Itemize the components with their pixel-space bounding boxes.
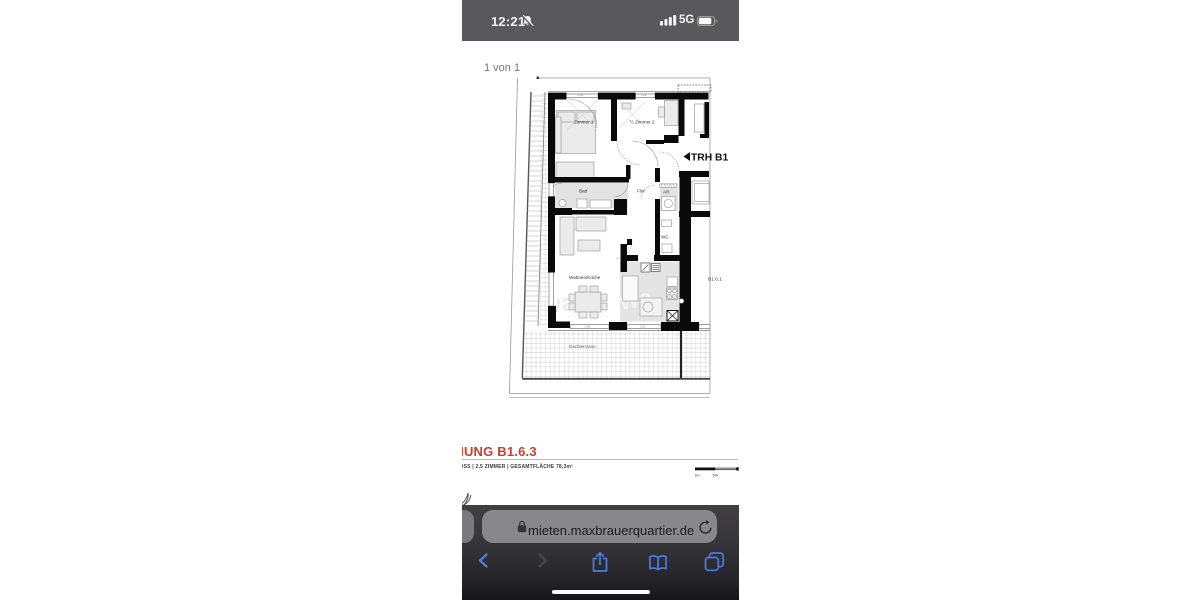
svg-text:2,01: 2,01: [641, 93, 647, 97]
svg-text:WC: WC: [661, 235, 669, 240]
svg-text:2,51: 2,51: [640, 325, 646, 329]
svg-text:Zimmer 1: Zimmer 1: [574, 120, 594, 125]
svg-text:2,96: 2,96: [585, 325, 591, 329]
svg-text:B1.6.1: B1.6.1: [708, 277, 722, 283]
svg-text:Wohnen/Küche: Wohnen/Küche: [569, 275, 601, 280]
svg-text:5m: 5m: [713, 473, 719, 478]
svg-text:AR: AR: [663, 190, 670, 195]
svg-text:½ Zimmer 2: ½ Zimmer 2: [630, 119, 655, 125]
svg-text:Dachterrasse: Dachterrasse: [569, 344, 596, 349]
svg-text:Bad: Bad: [579, 189, 588, 194]
svg-text:2,96: 2,96: [578, 93, 584, 97]
svg-text:0m: 0m: [695, 473, 700, 478]
svg-text:Flur: Flur: [637, 189, 645, 194]
svg-text:TRH B1: TRH B1: [691, 153, 728, 164]
